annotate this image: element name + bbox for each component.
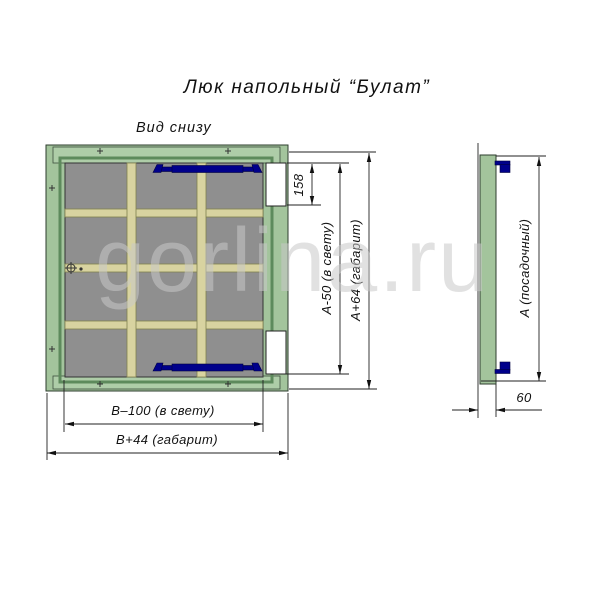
dim-thickness: 60 (516, 390, 532, 405)
dim-inner-width: B–100 (в свету) (111, 403, 214, 418)
view-label: Вид снизу (136, 120, 212, 136)
hatch-top-bar (53, 147, 280, 163)
drawing-canvas: 158 A-50 (в свету) A+64 (габарит) B–100 … (0, 0, 600, 600)
hinge-hook (495, 362, 510, 374)
stiffener-horizontal (65, 321, 263, 329)
hinge-slot (266, 331, 286, 374)
drawing-page: 158 A-50 (в свету) A+64 (габарит) B–100 … (0, 0, 600, 600)
dim-seat-height: A (посадочный) (517, 219, 532, 319)
page-title: Люк напольный “Булат” (182, 77, 431, 98)
hinge-slot (266, 163, 286, 206)
dim-outer-width: B+44 (габарит) (116, 432, 218, 447)
dim-slot-height: 158 (291, 173, 306, 196)
hinge-hook (495, 161, 510, 173)
watermark: gorlina.ru (95, 211, 490, 311)
